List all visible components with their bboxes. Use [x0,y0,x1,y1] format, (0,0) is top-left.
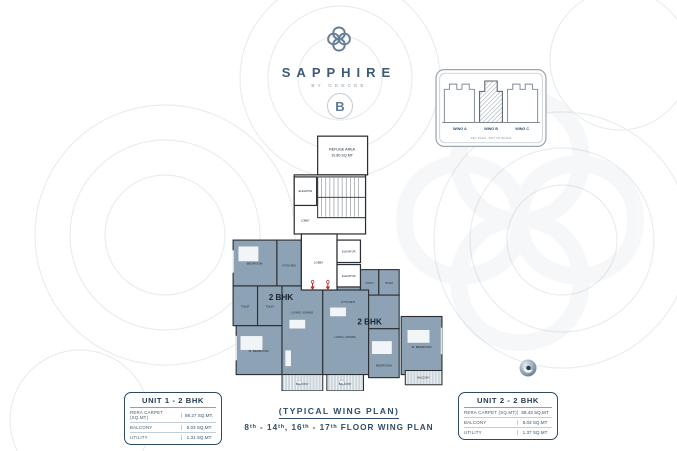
svg-text:TOILET: TOILET [241,305,250,308]
key-plan: WING A WING B WING C KEY PLAN - NOT TO S… [435,68,547,148]
floor-range-caption: 8ᵗʰ - 14ᵗʰ, 16ᵗʰ - 17ᵗʰ FLOOR WING PLAN [217,423,461,432]
svg-text:UTILITY: UTILITY [365,282,374,285]
unit2-row-value: 5.03 SQ.MT [517,420,552,425]
lens-icon [518,358,538,378]
svg-text:BALCONY: BALCONY [339,382,352,386]
svg-text:TOILET: TOILET [385,282,394,285]
svg-text:M. BEDROOM: M. BEDROOM [412,345,432,349]
table-row: BALCONY 5.03 SQ.MT [464,418,552,428]
unit1-row-label: UTILITY [130,435,181,440]
unit2-row-value: 1.37 SQ.MT [517,430,552,435]
svg-text:LIVING / DINING: LIVING / DINING [334,335,356,339]
sapphire-logo-icon [323,20,355,58]
svg-text:ELEVATOR: ELEVATOR [342,274,356,278]
brand-block: SAPPHIRE BY GEECEE [239,20,439,88]
unit2-row-value: 59.43 SQ.MT [517,410,552,415]
table-row: RERA CARPET (SQ.MT) 59.27 SQ.MT. [130,408,216,423]
svg-text:LOBBY: LOBBY [314,261,324,265]
svg-text:ELEVATOR: ELEVATOR [342,249,356,253]
unit2-row-label: UTILITY [464,430,517,435]
unit2-row-label: BALCONY [464,420,517,425]
keyplan-label-wing-c: WING C [515,127,529,131]
svg-text:LIVING / DINING: LIVING / DINING [292,310,314,314]
svg-text:ELEVATOR: ELEVATOR [299,189,313,193]
unit1-row-value: 5.03 SQ.MT [181,425,216,430]
unit1-row-label: RERA CARPET (SQ.MT) [130,410,181,420]
svg-text:BALCONY: BALCONY [417,376,430,380]
unit2-type-label: 2 BHK [357,318,382,327]
svg-text:LOBBY: LOBBY [301,219,310,223]
table-row: UTILITY 1.31 SQ.MT [130,433,216,442]
floorplan-sheet: SAPPHIRE BY GEECEE B WING A WING B WING … [0,0,677,451]
keyplan-label-wing-b: WING B [484,127,498,131]
svg-text:BALCONY: BALCONY [296,382,309,386]
unit2-title: UNIT 2 - 2 BHK [464,396,552,408]
keyplan-wing-a-outline [444,84,474,122]
keyplan-label-wing-a: WING A [453,127,467,131]
svg-text:KITCHEN: KITCHEN [282,264,295,268]
svg-text:BEDROOM: BEDROOM [376,363,392,367]
svg-text:REFUGE AREA: REFUGE AREA [329,147,356,151]
unit2-table: UNIT 2 - 2 BHK RERA CARPET (SQ.MT) 59.43… [458,392,558,440]
table-row: RERA CARPET (SQ.MT) 59.43 SQ.MT [464,408,552,418]
wing-badge-letter: B [335,99,344,114]
unit1-table: UNIT 1 - 2 BHK RERA CARPET (SQ.MT) 59.27… [124,392,222,445]
plan-caption: (TYPICAL WING PLAN) 8ᵗʰ - 14ᵗʰ, 16ᵗʰ - 1… [217,401,461,432]
wing-floor-plan: REFUGE AREA 10.80 SQ.MT ELEVATOR LOBBY L… [228,134,444,391]
table-row: UTILITY 1.37 SQ.MT [464,428,552,437]
core-block [294,136,367,290]
unit1-row-value: 1.31 SQ.MT [181,435,216,440]
unit1-row-value: 59.27 SQ.MT. [181,413,216,418]
svg-text:TOILET: TOILET [265,305,274,308]
unit1-title: UNIT 1 - 2 BHK [130,396,216,408]
svg-text:BEDROOM: BEDROOM [247,262,263,266]
wing-b-badge: B [327,93,353,119]
table-row: BALCONY 5.03 SQ.MT [130,423,216,433]
unit1-row-label: BALCONY [130,425,181,430]
keyplan-wing-c-outline [508,84,538,122]
svg-text:KITCHEN: KITCHEN [342,300,355,304]
svg-text:M. BEDROOM: M. BEDROOM [249,349,269,353]
svg-text:10.80 SQ.MT: 10.80 SQ.MT [331,154,354,158]
typical-wing-plan-caption: (TYPICAL WING PLAN) [279,406,400,419]
unit2-row-label: RERA CARPET (SQ.MT) [464,410,517,415]
unit1-type-label: 2 BHK [269,293,294,302]
brand-byline: BY GEECEE [239,83,439,88]
keyplan-caption: KEY PLAN - NOT TO SCALE [471,136,512,140]
brand-name: SAPPHIRE [239,65,439,80]
